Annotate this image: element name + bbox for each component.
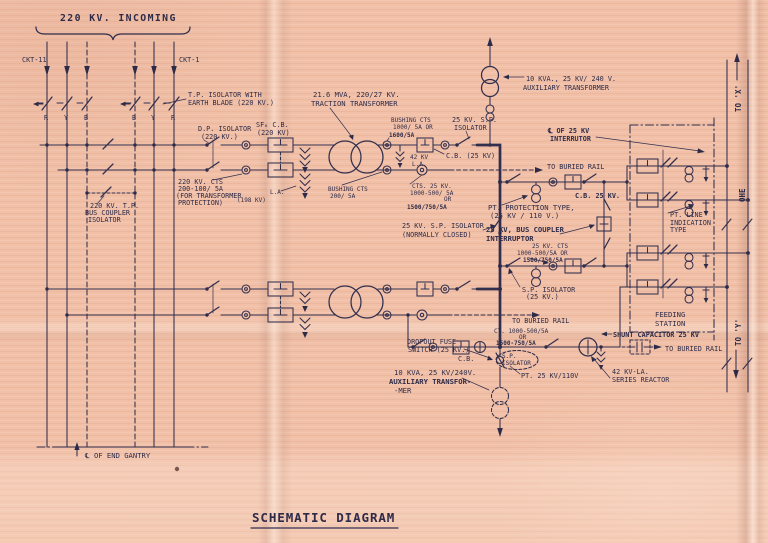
cts-25kv-top-label-l4: 1500/750/5A xyxy=(407,204,447,211)
to-buried-rail-3-label: TO BURIED RAIL xyxy=(665,345,722,353)
cts-25kv-mid-label-l2: 1000-500/5A OR xyxy=(517,250,568,257)
cl-interruptor-label-l1: ℄ OF 25 KV xyxy=(547,127,589,135)
la-42kv-symbol xyxy=(396,145,404,168)
end-gantry: ℄ OF END GANTRY xyxy=(37,442,208,460)
traction-transformer-1 xyxy=(329,141,383,173)
sp-isolator-small-label-l1: S.P. xyxy=(502,353,516,360)
aux-tx-bottom-label-l2: AUXILIARY TRANSFOR- xyxy=(389,377,471,386)
ohe-lines: TO 'X' OHE TO 'Y' xyxy=(722,53,752,392)
aux-tx-top-label-l1: 10 KVA., 25 KV/ 240 V. xyxy=(526,75,616,83)
sp-isolator-nc-label-l2: (NORMALLY CLOSED) xyxy=(402,231,472,239)
incoming-lines xyxy=(44,42,177,447)
bushing-cts-lv-label-l2: 200/ 5A xyxy=(330,193,356,200)
bushing-cts-lv-label-l1: BUSHING CTS xyxy=(328,186,368,193)
ohe-label: OHE xyxy=(738,188,747,202)
cts-25kv-top-label-l1: CTS. 25 KV. xyxy=(412,183,452,190)
sp-isolator-top-label-l2: ISOLATOR xyxy=(454,124,488,132)
bushing-cts-hv-label-l2: 1000/ 5A OR xyxy=(393,124,433,131)
ct-bottom-label-l3: 1500-750/5A xyxy=(496,340,536,347)
phase-b1: B xyxy=(84,114,88,122)
lightning-arrester-220kv xyxy=(300,148,310,199)
series-reactor-symbol xyxy=(579,338,597,356)
traction-tx-label-l2: TRACTION TRANSFORMER xyxy=(311,99,398,108)
phase-y1: Y xyxy=(64,114,68,122)
cb-25kv-label: C.B. 25 KV. xyxy=(575,192,620,200)
la-42kv-top-label-l2: L.A. xyxy=(412,161,426,168)
ckt-1-label: CKT-1 xyxy=(179,56,199,64)
traction-transformer-2 xyxy=(329,286,383,318)
traction-tx-label-l1: 21.6 MVA, 220/27 KV. xyxy=(313,90,400,99)
tp-isolator-label-l1: T.P. ISOLATOR WITH xyxy=(188,91,262,99)
to-x-label: TO 'X' xyxy=(734,85,743,112)
dp-isolator-label-l2: (220 KV.) xyxy=(201,133,238,141)
incoming-heading: 220 KV. INCOMING xyxy=(60,13,177,24)
la-42kv-bottom-label: 42 KV-LA. xyxy=(612,368,649,376)
cts-220kv-label-l4: PROTECTION) xyxy=(178,199,223,207)
cb-small-label: C.B. xyxy=(458,355,474,363)
feeding-station-label-l1: FEEDING xyxy=(655,310,685,319)
phase-r2: R xyxy=(171,114,176,122)
paper-speck xyxy=(175,467,179,471)
transformer-branch-1: TO BURIED RAIL D.P. ISOLATOR (220 KV.) S… xyxy=(176,90,604,211)
shunt-capacitor-branch xyxy=(622,340,662,354)
sp-isolator-nc-label-l1: 25 KV. S.P. ISOLATOR xyxy=(402,222,485,230)
cb-25kv-branch-label: C.B. (25 KV) xyxy=(446,152,495,160)
pt-protection-label-l2: (25 KV / 110 V.) xyxy=(490,211,559,220)
phase-r1: R xyxy=(44,114,49,122)
la-198kv-label-l1: L.A. xyxy=(270,189,284,196)
brace xyxy=(36,27,190,40)
drawing-title: SCHEMATIC DIAGRAM xyxy=(251,510,398,528)
end-gantry-label: ℄ OF END GANTRY xyxy=(84,451,151,460)
page-title: SCHEMATIC DIAGRAM xyxy=(252,510,395,525)
scanned-schematic-page: 220 KV. INCOMING CKT-11 CKT-1 xyxy=(0,0,768,543)
sp-isolator-25kv-label-l2: (25 KV.) xyxy=(526,293,559,301)
pt-line-indication-label-l3: TYPE xyxy=(670,226,686,234)
to-buried-rail-1-label: TO BURIED RAIL xyxy=(547,163,604,171)
dropout-fuse-label-l2: SWITCH (25 KV.) xyxy=(408,346,469,354)
cl-interruptor-label-l2: INTERRUTOR xyxy=(550,135,592,143)
bus-coupler-25kv-label-l1: 25 KV, BUS COUPLER xyxy=(486,225,565,234)
feeding-station-bays: PT. LINE INDICATION TYPE FEEDING STATION xyxy=(620,118,750,340)
tp-isolator-symbols xyxy=(33,97,179,110)
bushing-cts-hv-label-l1: BUSHING CTS xyxy=(391,117,431,124)
tp-bus-coupler-label-l3: ISOLATOR xyxy=(88,216,122,224)
phase-y2: Y xyxy=(151,114,155,122)
la-42kv-bottom-symbol xyxy=(597,347,605,370)
shunt-capacitor-label: SHUNT CAPACITOR 25 KV xyxy=(613,331,699,339)
aux-tx-bottom-label-l1: 10 KVA, 25 KV/240V. xyxy=(394,368,476,377)
to-y-label: TO 'Y' xyxy=(734,319,743,346)
aux-tx-bottom-label-l3: -MER xyxy=(394,386,412,395)
pt-line-indication-label-l1: PT. LINE xyxy=(670,211,703,219)
phase-labels: R Y B B Y R xyxy=(44,114,176,122)
bay-4 xyxy=(620,279,729,303)
phase-b2: B xyxy=(132,114,136,122)
feeding-station-label-l2: STATION xyxy=(655,319,685,328)
cts-25kv-top-label-l3: OR xyxy=(444,196,452,203)
pt-25kv-110v-label: PT. 25 KV/110V xyxy=(521,372,578,380)
sf6-cb-label-l1: SF₆ C.B. xyxy=(256,121,289,129)
incoming-section: 220 KV. INCOMING CKT-11 CKT-1 xyxy=(22,13,274,447)
la-42kv-top-label-l1: 42 KV xyxy=(410,154,428,161)
bus-coupler-25kv-label-l2: INTERRUPTOR xyxy=(486,234,534,243)
bay-3 xyxy=(627,245,750,269)
paper-speck-2 xyxy=(535,205,537,207)
bushing-cts-hv-label-l3: 1600/5A xyxy=(389,132,415,139)
aux-tx-top-label-l2: AUXILIARY TRANSFORMER xyxy=(523,84,610,92)
series-reactor-label: SERIES REACTOR xyxy=(612,376,670,384)
la-198kv-label-l2: (198 KV) xyxy=(237,197,266,204)
cts-25kv-mid-label-l1: 25 KV. CTS xyxy=(532,243,569,250)
to-buried-rail-2-label: TO BURIED RAIL xyxy=(512,317,569,325)
ckt-11-label: CKT-11 xyxy=(22,56,47,64)
transformer-branch-2: TO BURIED RAIL xyxy=(45,281,569,347)
tp-isolator-label-l2: EARTH BLADE (220 KV.) xyxy=(188,99,274,107)
dp-isolator-label-l1: D.P. ISOLATOR xyxy=(198,125,252,133)
sp-isolator-small-label-l2: ISOLATOR xyxy=(502,360,531,367)
dropout-fuse-label-l1: DROPOUT FUSE xyxy=(407,338,456,346)
schematic-drawing: 220 KV. INCOMING CKT-11 CKT-1 xyxy=(0,0,768,543)
sf6-cb-label-l2: (220 KV) xyxy=(257,129,290,137)
